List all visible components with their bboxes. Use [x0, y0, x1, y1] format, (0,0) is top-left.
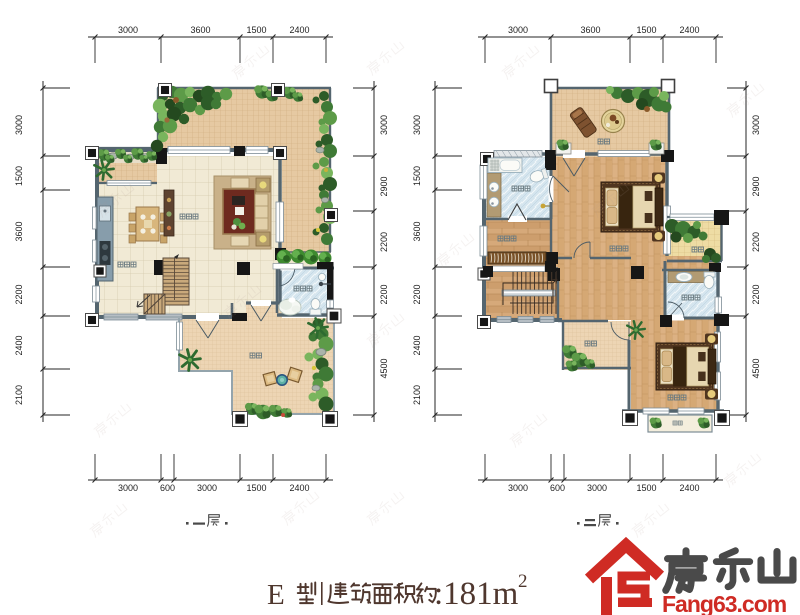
svg-text:2200: 2200 [379, 232, 389, 252]
svg-text:1500: 1500 [14, 166, 24, 186]
svg-text:4500: 4500 [751, 358, 761, 378]
svg-text:2100: 2100 [14, 385, 24, 405]
svg-text:2400: 2400 [412, 335, 422, 355]
svg-text:3000: 3000 [508, 25, 528, 35]
svg-text:3600: 3600 [580, 25, 600, 35]
svg-text:600: 600 [550, 483, 565, 493]
svg-text:3000: 3000 [412, 115, 422, 135]
svg-text:2400: 2400 [679, 25, 699, 35]
svg-text:3000: 3000 [751, 115, 761, 135]
svg-text:2200: 2200 [751, 232, 761, 252]
svg-text:3600: 3600 [190, 25, 210, 35]
svg-text:1500: 1500 [246, 25, 266, 35]
svg-text:3000: 3000 [197, 483, 217, 493]
svg-text:4500: 4500 [379, 358, 389, 378]
svg-text:2200: 2200 [751, 284, 761, 304]
svg-text:2100: 2100 [412, 385, 422, 405]
svg-text:600: 600 [160, 483, 175, 493]
svg-text:2900: 2900 [751, 176, 761, 196]
svg-text::181m: :181m [434, 576, 519, 612]
svg-text:2200: 2200 [412, 284, 422, 304]
svg-text:1500: 1500 [636, 483, 656, 493]
svg-text:3600: 3600 [412, 221, 422, 241]
svg-text:3600: 3600 [14, 221, 24, 241]
svg-text:E: E [267, 579, 285, 611]
svg-text:2400: 2400 [679, 483, 699, 493]
svg-text:2200: 2200 [14, 284, 24, 304]
svg-text:3000: 3000 [118, 483, 138, 493]
svg-text:3000: 3000 [14, 115, 24, 135]
svg-text:Fang63.com: Fang63.com [662, 591, 787, 615]
svg-text:2200: 2200 [379, 284, 389, 304]
svg-text:1500: 1500 [636, 25, 656, 35]
svg-text:2900: 2900 [379, 176, 389, 196]
svg-text:3000: 3000 [118, 25, 138, 35]
svg-text:2400: 2400 [14, 335, 24, 355]
svg-text:1500: 1500 [412, 166, 422, 186]
svg-text:3000: 3000 [379, 115, 389, 135]
svg-text:1500: 1500 [246, 483, 266, 493]
svg-text:3000: 3000 [508, 483, 528, 493]
svg-text:2400: 2400 [289, 483, 309, 493]
svg-text:2: 2 [518, 571, 528, 592]
svg-text:3000: 3000 [587, 483, 607, 493]
svg-text:2400: 2400 [289, 25, 309, 35]
